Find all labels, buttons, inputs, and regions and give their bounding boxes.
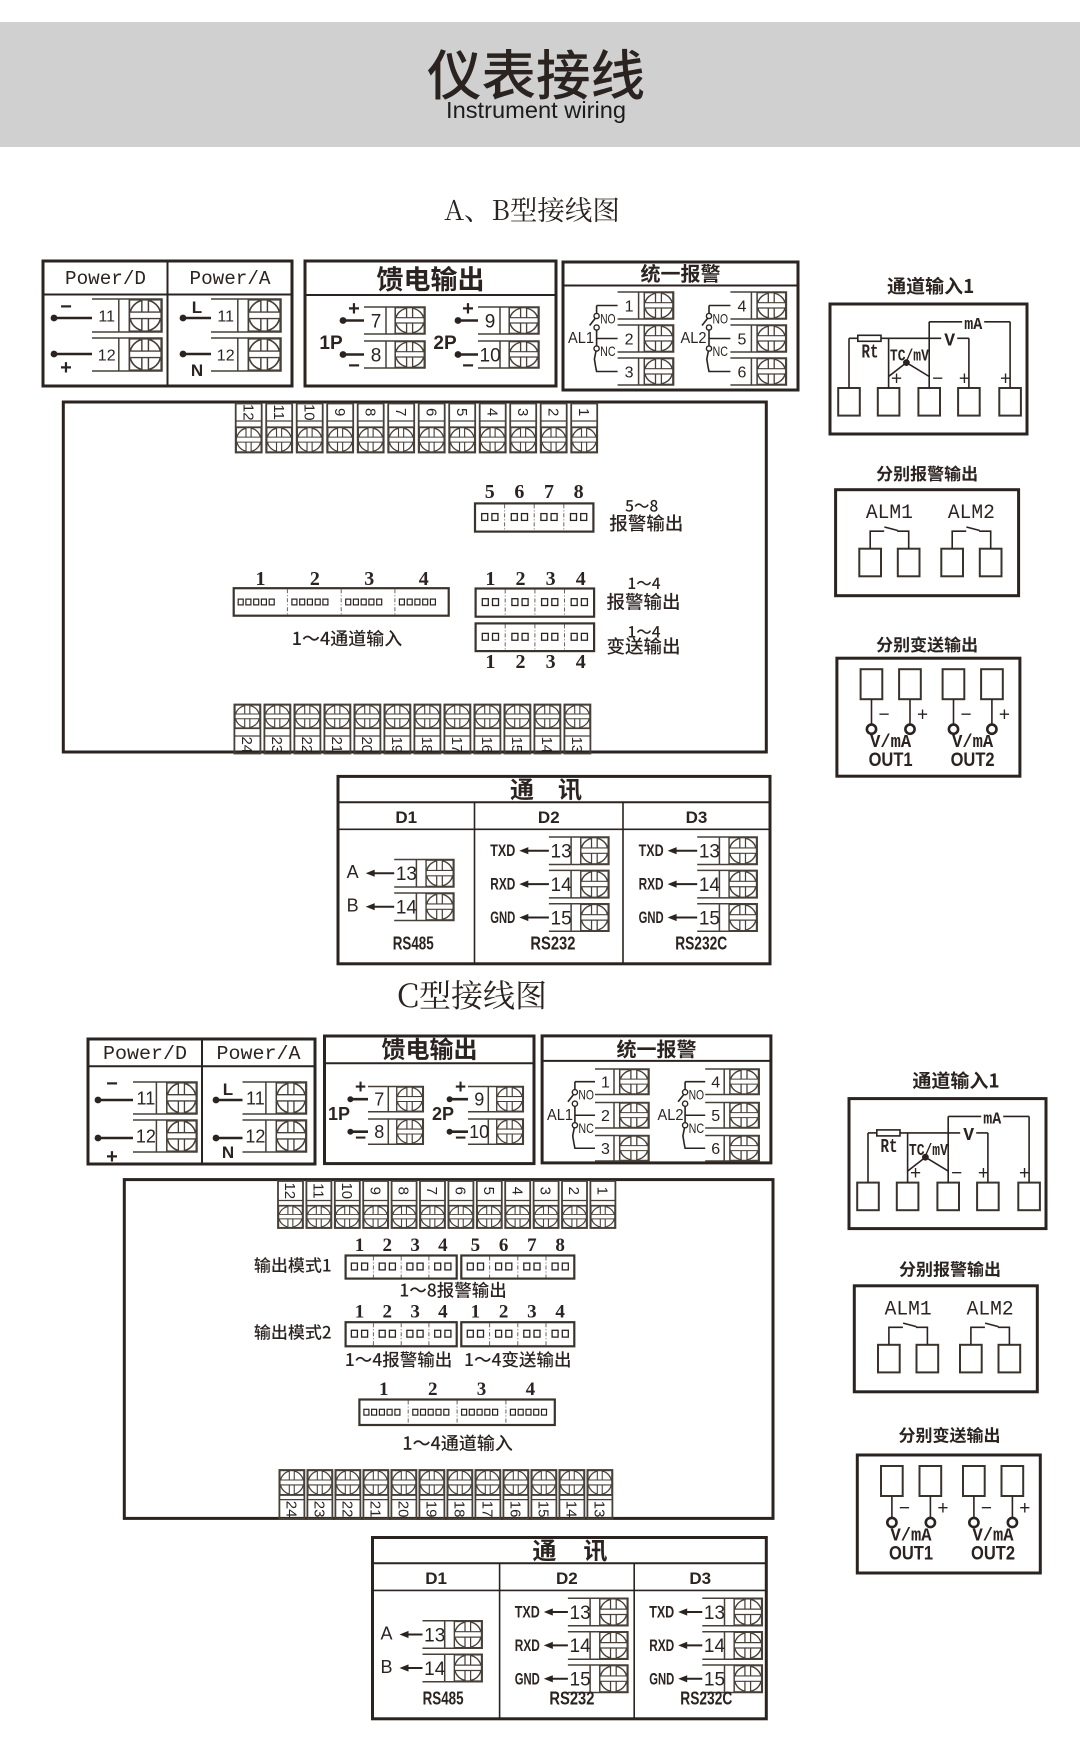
svg-text:13: 13 [568,736,585,753]
svg-text:Rt: Rt [881,1136,898,1158]
svg-text:mA: mA [964,316,983,335]
svg-text:RS232: RS232 [530,934,575,954]
svg-text:OUT2: OUT2 [971,1544,1015,1565]
svg-text:1: 1 [485,651,495,673]
svg-text:3: 3 [546,651,556,673]
svg-text:15: 15 [704,1670,725,1691]
svg-text:12: 12 [217,347,235,364]
svg-text:14: 14 [551,875,573,896]
svg-text:10: 10 [338,1182,355,1199]
svg-text:3: 3 [537,1187,554,1195]
svg-text:RS485: RS485 [393,934,434,954]
svg-text:+: + [910,1163,921,1184]
svg-text:3: 3 [364,568,374,590]
svg-text:14: 14 [563,1501,580,1518]
svg-text:2P: 2P [433,333,457,354]
svg-text:Power/A: Power/A [190,268,272,290]
svg-text:5: 5 [711,1108,720,1125]
svg-text:12: 12 [239,404,256,421]
svg-text:7: 7 [423,1187,440,1195]
svg-text:3: 3 [410,1235,420,1256]
svg-text:13: 13 [699,842,720,863]
svg-text:NO: NO [578,1087,594,1103]
svg-text:17: 17 [479,1501,496,1518]
svg-text:RXD: RXD [515,1637,540,1655]
svg-text:7: 7 [392,408,409,416]
svg-text:4: 4 [508,1187,525,1195]
svg-text:+: + [106,1146,118,1168]
svg-text:TXD: TXD [490,842,515,860]
svg-text:7: 7 [371,311,382,332]
svg-text:11: 11 [217,308,234,325]
svg-text:N: N [191,361,203,380]
svg-text:A: A [380,1624,392,1644]
svg-text:RXD: RXD [649,1637,674,1655]
svg-text:3: 3 [527,1302,537,1323]
svg-text:1: 1 [379,1379,389,1400]
svg-text:8: 8 [374,1122,384,1142]
svg-text:9: 9 [366,1187,383,1195]
svg-text:Power/A: Power/A [217,1043,302,1065]
svg-text:+: + [1000,369,1011,390]
svg-text:6: 6 [737,364,746,381]
svg-text:5: 5 [480,1187,497,1195]
svg-text:+: + [355,1077,366,1098]
svg-text:4: 4 [555,1302,565,1323]
svg-text:3: 3 [601,1141,610,1158]
svg-text:AL1: AL1 [568,330,594,347]
svg-text:7: 7 [374,1090,384,1110]
svg-text:14: 14 [424,1659,446,1680]
svg-text:RS485: RS485 [423,1689,464,1709]
svg-text:6: 6 [711,1141,720,1158]
svg-text:D1: D1 [425,1569,447,1588]
svg-text:+: + [978,1163,989,1184]
svg-text:TXD: TXD [515,1604,540,1622]
svg-text:Instrument wiring: Instrument wiring [446,97,626,123]
svg-text:15: 15 [699,908,720,929]
svg-text:17: 17 [448,736,465,753]
svg-text:2: 2 [310,568,320,590]
svg-text:2: 2 [601,1108,610,1125]
svg-text:13: 13 [424,1625,445,1646]
svg-text:OUT2: OUT2 [951,750,995,771]
svg-text:18: 18 [451,1501,468,1518]
svg-text:23: 23 [311,1501,328,1518]
svg-text:1: 1 [471,1302,481,1323]
svg-text:+: + [1019,1163,1030,1184]
svg-text:D3: D3 [686,808,708,827]
svg-text:1: 1 [594,1187,611,1195]
svg-text:V: V [944,332,955,352]
svg-text:+: + [1019,1498,1030,1519]
svg-text:Rt: Rt [862,342,879,364]
svg-text:4: 4 [438,1302,448,1323]
svg-text:RS232C: RS232C [675,934,727,954]
svg-text:6: 6 [452,1187,469,1195]
svg-text:NC: NC [713,343,729,359]
svg-text:22: 22 [298,736,315,753]
svg-text:21: 21 [328,736,345,753]
svg-text:9: 9 [485,311,496,332]
svg-text:5: 5 [453,408,470,416]
svg-text:8: 8 [555,1235,565,1256]
svg-text:1P: 1P [328,1104,350,1124]
svg-text:5: 5 [485,481,495,503]
svg-text:1: 1 [601,1075,610,1092]
svg-text:NO: NO [713,311,729,327]
svg-text:Power/D: Power/D [103,1043,187,1065]
svg-text:16: 16 [507,1501,524,1518]
svg-text:1: 1 [256,568,266,590]
svg-text:14: 14 [699,875,721,896]
svg-text:+: + [348,298,360,320]
svg-text:GND: GND [639,909,664,927]
svg-text:3: 3 [477,1379,487,1400]
svg-text:14: 14 [704,1636,726,1657]
svg-text:11: 11 [246,1089,265,1109]
svg-text:21: 21 [367,1501,384,1518]
svg-text:3: 3 [546,568,556,590]
svg-text:AL2: AL2 [681,330,707,347]
svg-text:15: 15 [535,1501,552,1518]
svg-text:NC: NC [600,343,616,359]
svg-text:V: V [963,1126,974,1146]
svg-text:14: 14 [396,898,418,919]
svg-text:24: 24 [283,1501,300,1518]
svg-text:A: A [347,862,359,882]
svg-text:AL1: AL1 [547,1107,573,1124]
svg-text:RS232: RS232 [549,1689,594,1709]
svg-text:1: 1 [575,408,592,416]
svg-text:2P: 2P [432,1104,454,1124]
svg-text:13: 13 [591,1501,608,1518]
svg-text:−: − [355,1128,366,1149]
svg-text:4: 4 [576,651,586,673]
svg-text:6: 6 [499,1235,509,1256]
svg-text:TC/mV: TC/mV [909,1142,949,1161]
svg-text:8: 8 [361,408,378,416]
svg-text:7: 7 [544,481,554,503]
svg-text:23: 23 [268,736,285,753]
svg-text:D1: D1 [395,808,417,827]
svg-text:4: 4 [419,568,429,590]
svg-text:9: 9 [331,408,348,416]
svg-text:10: 10 [469,1122,489,1142]
svg-text:4: 4 [737,298,746,315]
svg-text:OUT1: OUT1 [869,750,913,771]
svg-text:ALM1: ALM1 [866,502,913,525]
svg-text:L: L [192,298,202,317]
svg-text:N: N [222,1143,234,1162]
svg-text:B: B [380,1657,392,1677]
svg-text:GND: GND [649,1670,674,1688]
svg-text:+: + [891,369,902,390]
svg-text:22: 22 [339,1501,356,1518]
svg-text:−: − [455,1128,466,1149]
svg-text:2: 2 [383,1302,393,1323]
svg-text:9: 9 [474,1090,484,1110]
svg-text:15: 15 [508,736,525,753]
svg-text:15: 15 [570,1670,591,1691]
svg-text:+: + [959,369,970,390]
svg-text:13: 13 [704,1603,725,1624]
svg-text:2: 2 [428,1379,438,1400]
svg-text:mA: mA [983,1111,1002,1130]
svg-text:14: 14 [570,1636,592,1657]
svg-text:13: 13 [551,842,572,863]
svg-text:Power/D: Power/D [65,268,146,290]
svg-text:RS232C: RS232C [680,1689,732,1709]
svg-text:D2: D2 [538,808,560,827]
svg-text:24: 24 [238,736,255,753]
svg-text:−: − [878,705,889,726]
svg-text:11: 11 [137,1089,156,1109]
svg-text:2: 2 [516,651,526,673]
svg-text:2: 2 [499,1302,509,1323]
svg-text:16: 16 [478,736,495,753]
svg-text:2: 2 [544,408,561,416]
svg-text:B: B [347,896,359,916]
svg-text:−: − [981,1498,992,1519]
svg-text:RXD: RXD [639,876,664,894]
svg-text:10: 10 [300,404,317,421]
svg-text:1: 1 [355,1302,365,1323]
svg-text:TXD: TXD [639,842,664,860]
svg-text:−: − [348,355,360,377]
svg-text:12: 12 [136,1127,156,1147]
svg-text:GND: GND [490,909,515,927]
svg-text:2: 2 [516,568,526,590]
svg-text:−: − [932,369,943,390]
svg-text:11: 11 [270,404,287,420]
svg-text:14: 14 [538,736,555,753]
svg-text:13: 13 [570,1603,591,1624]
svg-text:15: 15 [551,908,572,929]
svg-text:TC/mV: TC/mV [890,348,930,367]
svg-text:7: 7 [527,1235,537,1256]
svg-text:RXD: RXD [490,876,515,894]
svg-text:5: 5 [471,1235,481,1256]
svg-text:8: 8 [395,1187,412,1195]
svg-text:NO: NO [689,1087,705,1103]
svg-text:1: 1 [355,1235,365,1256]
svg-text:6: 6 [514,481,524,503]
svg-text:+: + [937,1498,948,1519]
svg-text:3: 3 [514,408,531,416]
svg-text:AL2: AL2 [658,1107,684,1124]
svg-text:11: 11 [98,308,115,325]
svg-text:ALM2: ALM2 [967,1298,1014,1321]
svg-text:+: + [60,357,72,379]
svg-text:13: 13 [396,864,417,885]
svg-text:2: 2 [565,1187,582,1195]
svg-text:NO: NO [600,311,616,327]
svg-text:+: + [462,298,474,320]
svg-text:19: 19 [388,736,405,753]
svg-text:18: 18 [418,736,435,753]
svg-text:D3: D3 [689,1569,711,1588]
svg-text:6: 6 [422,408,439,416]
svg-text:10: 10 [480,345,501,366]
svg-text:−: − [60,296,72,318]
svg-text:4: 4 [526,1379,536,1400]
svg-text:D2: D2 [556,1569,578,1588]
svg-text:TXD: TXD [649,1604,674,1622]
svg-text:NC: NC [689,1120,705,1136]
svg-text:−: − [960,705,971,726]
svg-text:1P: 1P [319,333,343,354]
svg-text:ALM2: ALM2 [948,502,995,525]
svg-text:3: 3 [625,364,634,381]
svg-text:12: 12 [245,1127,265,1147]
svg-text:20: 20 [395,1501,412,1518]
svg-text:8: 8 [371,345,382,366]
svg-text:11: 11 [310,1183,327,1199]
svg-text:2: 2 [383,1235,393,1256]
svg-text:4: 4 [576,568,586,590]
svg-text:2: 2 [625,331,634,348]
svg-text:1: 1 [625,298,634,315]
svg-text:+: + [917,705,928,726]
svg-text:4: 4 [711,1075,720,1092]
svg-text:12: 12 [281,1182,298,1199]
svg-text:1: 1 [485,568,495,590]
svg-text:3: 3 [410,1302,420,1323]
svg-text:4: 4 [483,408,500,416]
svg-text:+: + [455,1077,466,1098]
svg-text:+: + [999,705,1010,726]
svg-text:GND: GND [515,1670,540,1688]
svg-text:19: 19 [423,1501,440,1518]
svg-text:L: L [223,1080,233,1099]
svg-text:−: − [462,355,474,377]
svg-text:12: 12 [98,347,116,364]
svg-text:NC: NC [578,1120,594,1136]
svg-text:4: 4 [438,1235,448,1256]
svg-text:OUT1: OUT1 [889,1544,933,1565]
svg-text:−: − [951,1163,962,1184]
svg-text:−: − [106,1073,118,1095]
svg-text:−: − [899,1498,910,1519]
svg-text:8: 8 [574,481,584,503]
svg-text:5: 5 [737,331,746,348]
svg-text:ALM1: ALM1 [885,1298,932,1321]
svg-text:20: 20 [358,736,375,753]
